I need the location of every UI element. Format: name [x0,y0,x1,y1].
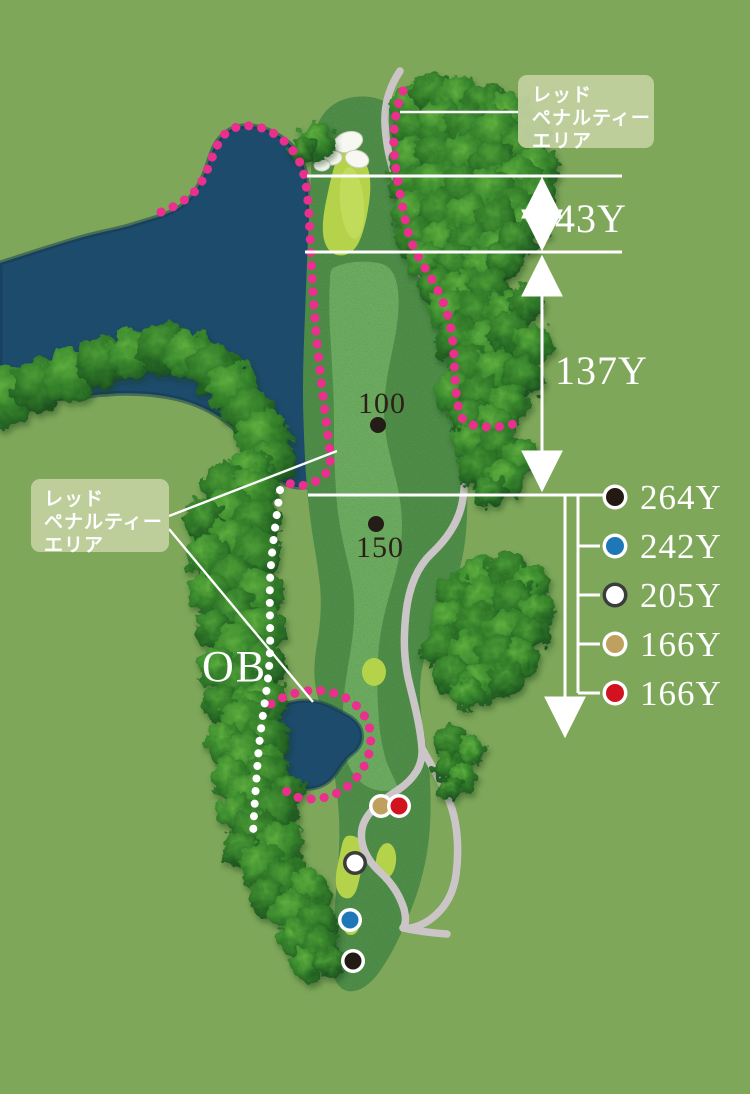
penalty-label-line1: レッド [532,84,592,106]
penalty-label-line2: ペナルティー [532,107,651,129]
legend-distance-black: 264Y [640,478,722,517]
penalty-label-line3: エリア [44,534,104,556]
white-tee-marker [347,855,364,872]
mid-segment-label: 137Y [555,348,648,393]
blue-tee-marker [342,912,359,929]
penalty-label-line2: ペナルティー [44,511,163,533]
legend-distance-red: 166Y [640,674,722,713]
legend-distance-blue: 242Y [640,527,722,566]
penalty-label-line1: レッド [44,488,104,510]
gold-tee-marker [373,798,390,815]
course-map: 43Y 137Y レッド ペナルティー エリア レッド ペナルティー エリア O… [0,0,750,1094]
legend-distance-white: 205Y [640,576,722,615]
legend-dot-black [606,488,624,506]
legend-distance-gold: 166Y [640,625,722,664]
yardage-100-dot [370,417,386,433]
green-depth-label: 43Y [555,196,627,241]
penalty-label-top: レッド ペナルティー エリア [518,75,654,152]
yardage-150-label: 150 [356,531,404,564]
black-tee-marker [345,953,362,970]
legend-dot-gold [606,635,624,653]
ob-label: OB [202,642,267,691]
yardage-100-label: 100 [358,387,406,420]
legend-dot-red [606,684,624,702]
tee-box [362,658,386,686]
legend-dot-blue [606,537,624,555]
yardage-150-dot [368,516,384,532]
red-tee-marker [391,798,408,815]
penalty-label-left: レッド ペナルティー エリア [31,479,169,556]
penalty-label-line3: エリア [532,130,592,152]
legend-dot-white [606,586,624,604]
golf-hole-guide: 43Y 137Y レッド ペナルティー エリア レッド ペナルティー エリア O… [0,0,750,1094]
